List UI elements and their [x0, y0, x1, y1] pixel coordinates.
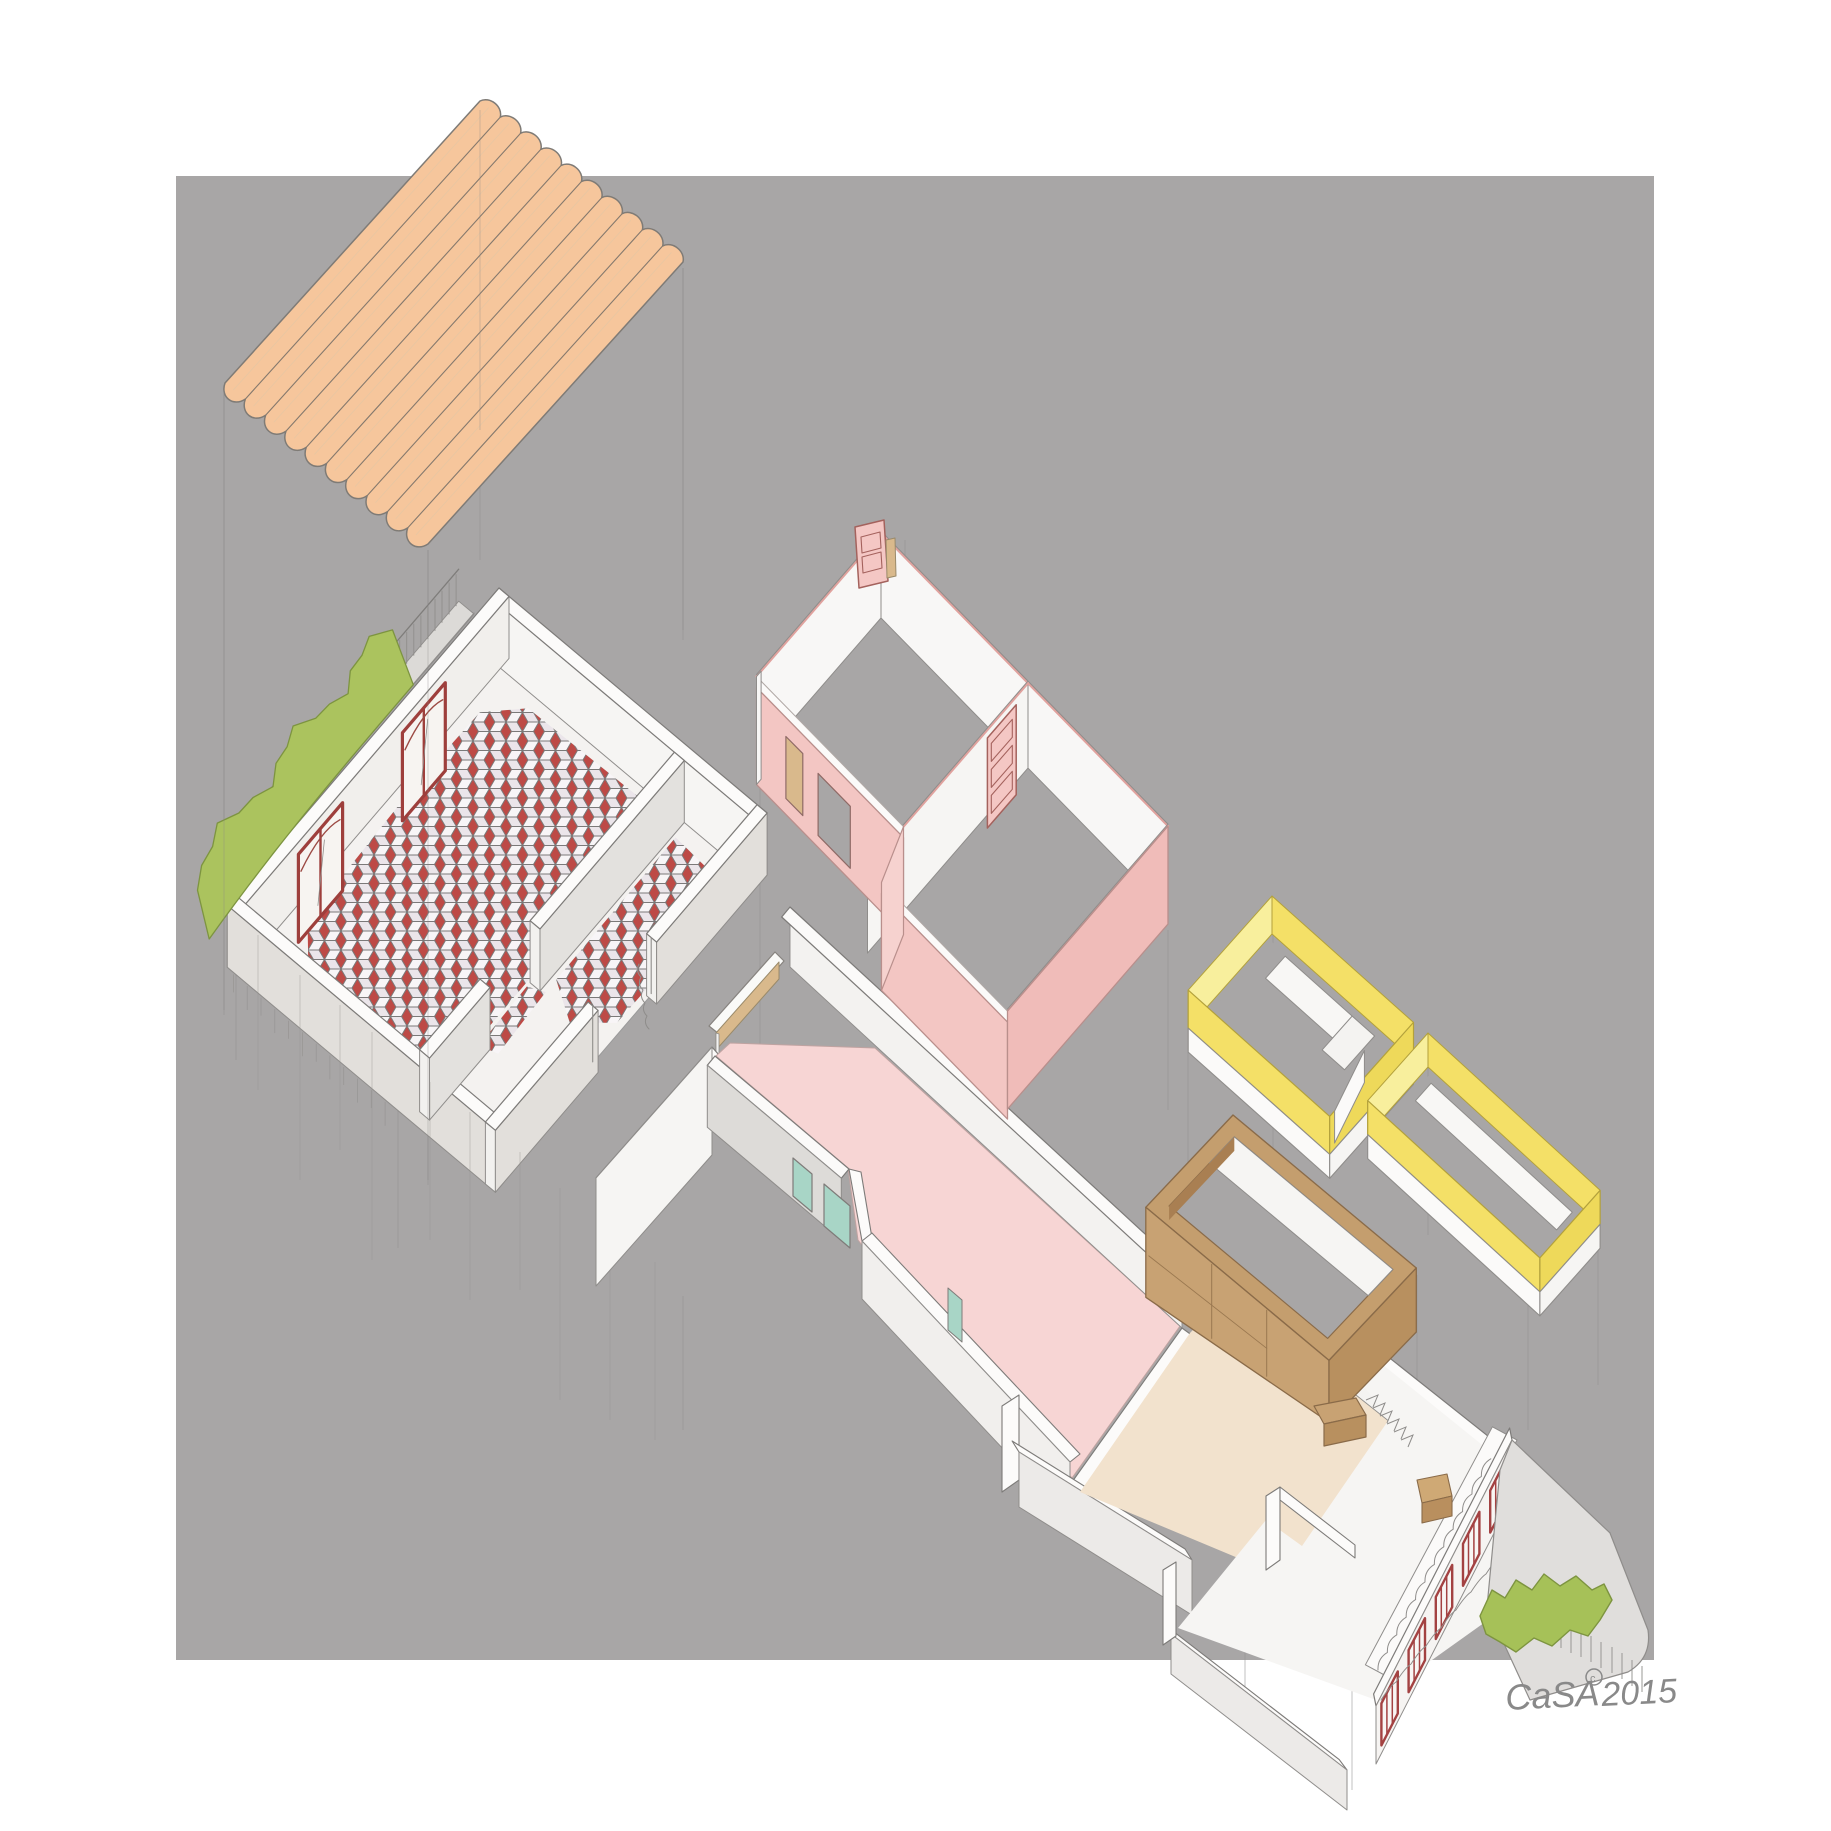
svg-text:2015: 2015: [1599, 1672, 1678, 1714]
svg-text:c: c: [1590, 1673, 1596, 1685]
